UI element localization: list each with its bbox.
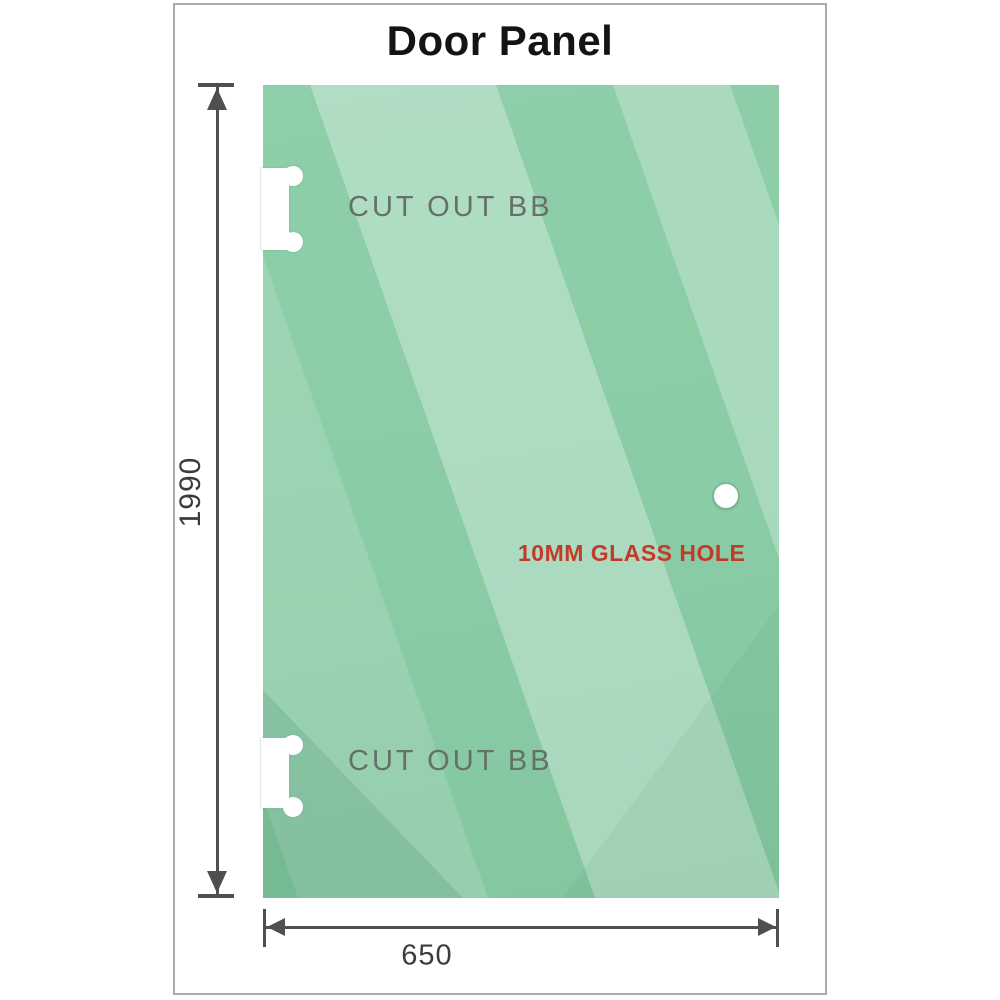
cutout-top-label: CUT OUT BB bbox=[348, 191, 553, 224]
height-dim-arrow-up-icon bbox=[207, 88, 227, 110]
height-dim-label: 1990 bbox=[174, 457, 208, 528]
glass-hole-label: 10MM GLASS HOLE bbox=[518, 540, 745, 567]
width-dim-label: 650 bbox=[401, 940, 452, 973]
page-title: Door Panel bbox=[173, 17, 827, 65]
width-dim-line bbox=[266, 926, 776, 929]
height-dim-cap-bottom bbox=[198, 894, 234, 898]
glass-door-panel: CUT OUT BB CUT OUT BB 10MM GLASS HOLE bbox=[263, 85, 779, 898]
glass-hole bbox=[714, 484, 738, 508]
width-dim-cap-right bbox=[776, 909, 779, 947]
height-dim-line bbox=[216, 87, 219, 894]
cutout-bottom-label: CUT OUT BB bbox=[348, 745, 553, 778]
width-dim-arrow-right-icon bbox=[758, 918, 776, 936]
hinge-cutout-top-shape bbox=[261, 158, 309, 260]
width-dim-arrow-left-icon bbox=[267, 918, 285, 936]
height-dim-arrow-down-icon bbox=[207, 871, 227, 893]
hinge-cutout-bottom-shape bbox=[261, 728, 309, 830]
